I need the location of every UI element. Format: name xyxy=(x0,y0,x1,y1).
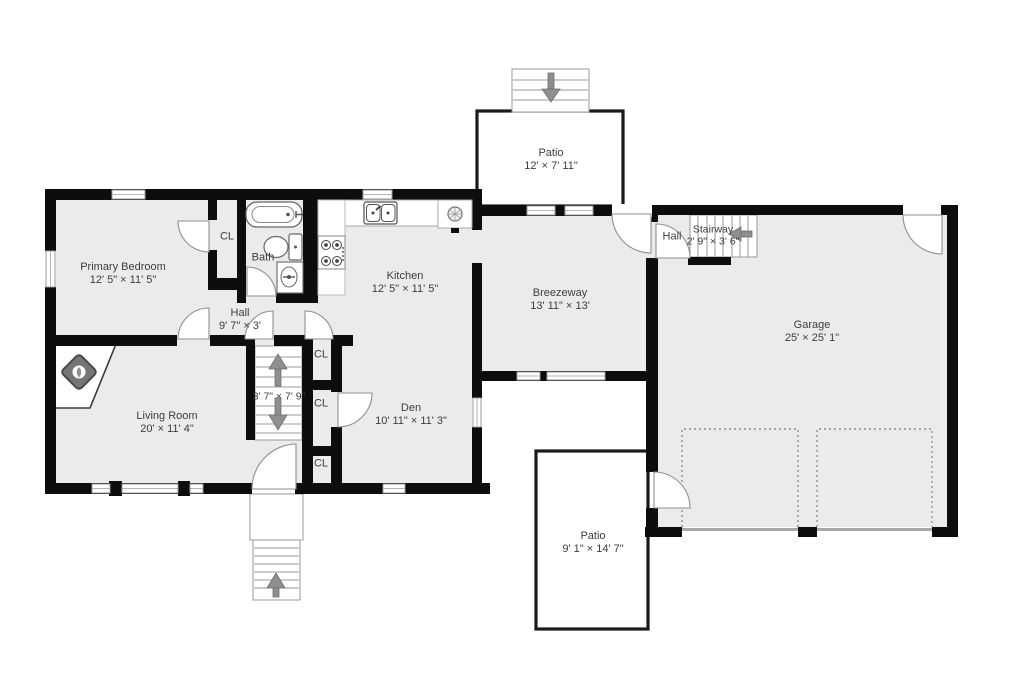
room-label-stairway: Stairway 2' 9" × 3' 6" xyxy=(687,225,740,248)
bath-sink-drain xyxy=(287,275,291,279)
wall-right-a xyxy=(472,189,482,230)
room-name: Living Room xyxy=(136,410,197,423)
wall-top-main xyxy=(45,189,482,200)
room-name: Stairway xyxy=(687,225,740,237)
wall-hall-3 xyxy=(274,335,304,346)
wall-garage-bottom-2 xyxy=(798,527,817,537)
room-name: Primary Bedroom xyxy=(80,261,166,274)
room-dims: 9' 7" × 3' xyxy=(219,320,261,333)
room-dims: 20' × 11' 4" xyxy=(136,423,197,436)
room-dims: 2' 9" × 3' 6" xyxy=(687,236,740,248)
wall-hall-2 xyxy=(210,335,246,346)
room-dims: 25' × 25' 1" xyxy=(785,332,839,345)
floor-plan: Primary Bedroom 12' 5" × 11' 5" Bath Kit… xyxy=(0,0,1014,698)
wall-garage-bottom-3 xyxy=(932,527,958,537)
closet-label-2: CL xyxy=(314,398,328,411)
room-label-breezeway: Breezeway 13' 11" × 13' xyxy=(530,287,590,313)
room-label-patio-upper: Patio 12' × 7' 11" xyxy=(524,147,577,173)
room-label-hall: Hall 9' 7" × 3' xyxy=(219,307,261,333)
room-dims: 12' 5" × 11' 5" xyxy=(372,283,439,296)
sink-drain-left xyxy=(372,212,375,215)
room-dims: 9' 1" × 14' 7" xyxy=(562,543,623,556)
toilet-tank-dot xyxy=(294,246,297,249)
wall-right-c xyxy=(472,427,482,494)
garage-door-sill-2 xyxy=(817,528,932,531)
room-name: Breezeway xyxy=(530,287,590,300)
wall-bedroom-right-a xyxy=(208,200,217,220)
room-name: Patio xyxy=(524,147,577,160)
room-dims: 10' 11" × 11' 3" xyxy=(375,415,447,428)
room-label-upper-hall: Hall xyxy=(663,231,682,244)
wall-window-tab-1 xyxy=(109,481,122,496)
floor-fills xyxy=(56,200,947,527)
wall-left-lower xyxy=(45,287,56,494)
wall-bedroom-right-b xyxy=(208,250,217,280)
wall-left-upper xyxy=(45,189,56,251)
wall-stairway-bottom xyxy=(688,257,731,265)
appliance-tick xyxy=(451,228,459,233)
kitchen-breezeway-gap-floor xyxy=(472,230,482,263)
room-name: Den xyxy=(375,402,447,415)
wall-cl1-bottom xyxy=(313,380,333,390)
room-label-garage: Garage 25' × 25' 1" xyxy=(785,319,839,345)
wall-divider-b xyxy=(646,258,658,472)
room-dims: 3' 7" × 7' 9" xyxy=(253,391,306,403)
center-stairs-dims-label: 3' 7" × 7' 9" xyxy=(253,391,306,403)
room-dims: 12' × 7' 11" xyxy=(524,160,577,173)
closet-label-1: CL xyxy=(314,349,328,362)
room-label-patio-lower: Patio 9' 1" × 14' 7" xyxy=(562,530,623,556)
room-label-primary-bedroom: Primary Bedroom 12' 5" × 11' 5" xyxy=(80,261,166,287)
floor-plan-graphics xyxy=(0,0,1014,698)
wall-garage-top-left xyxy=(655,205,903,215)
room-name: Bath xyxy=(252,252,275,265)
wall-bath-right xyxy=(303,200,318,303)
closet-label-3: CL xyxy=(314,458,328,471)
room-name: Hall xyxy=(663,231,682,244)
wall-stairs-right xyxy=(302,335,313,483)
wall-bath-bottom xyxy=(276,293,303,303)
room-label-living-room: Living Room 20' × 11' 4" xyxy=(136,410,197,436)
room-name: Garage xyxy=(785,319,839,332)
wall-hall-1 xyxy=(56,335,177,346)
room-label-kitchen: Kitchen 12' 5" × 11' 5" xyxy=(372,270,439,296)
bathtub-drain xyxy=(286,213,290,217)
room-name: Patio xyxy=(562,530,623,543)
sink-drain-right xyxy=(387,212,390,215)
room-label-bath: Bath xyxy=(252,252,275,265)
wall-cl2-bottom xyxy=(313,446,333,456)
entry-landing xyxy=(250,494,303,540)
room-name: Kitchen xyxy=(372,270,439,283)
room-label-den: Den 10' 11" × 11' 3" xyxy=(375,402,447,428)
wall-bath-left xyxy=(237,200,246,303)
room-dims: 13' 11" × 13' xyxy=(530,300,590,313)
room-name: Hall xyxy=(219,307,261,320)
wall-window-tab-2 xyxy=(178,481,190,496)
wall-stairs-left xyxy=(246,335,255,440)
wall-divider-c xyxy=(646,508,658,537)
closet-label-bedroom: CL xyxy=(220,231,234,244)
garage-door-sill-1 xyxy=(682,528,798,531)
wall-garage-right xyxy=(947,205,958,537)
room-dims: 12' 5" × 11' 5" xyxy=(80,274,166,287)
